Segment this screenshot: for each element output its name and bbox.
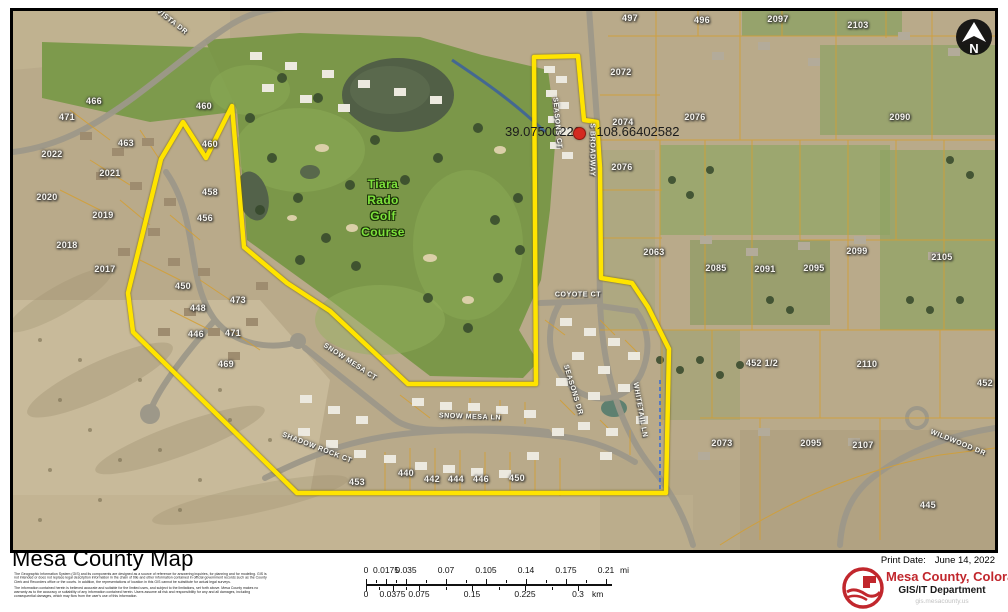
parcel-label: 2105: [931, 252, 952, 262]
parcel-label: 450: [509, 473, 525, 483]
scale-tick: [366, 586, 367, 591]
disclaimer-paragraph-2: The information contained herein is beli…: [14, 586, 267, 598]
parcel-label: 2063: [643, 247, 664, 257]
coordinate-latitude: 39.07500226: [505, 124, 581, 139]
parcel-label: 442: [424, 474, 440, 484]
parcel-label: 2110: [857, 359, 878, 369]
parcel-label: 496: [694, 15, 710, 25]
parcel-label: 2073: [711, 438, 732, 448]
parcel-label: 2076: [611, 162, 632, 172]
parcel-label: 2074: [612, 117, 633, 127]
street-label: COYOTE CT: [555, 292, 601, 299]
scale-tick: [406, 579, 407, 584]
street-label: S BROADWAY: [589, 123, 596, 177]
parcel-label: 2095: [800, 438, 821, 448]
street-label: SEASONS DR: [562, 364, 584, 416]
golf-label-line: Tiara: [361, 176, 405, 192]
scale-tick: [366, 579, 367, 584]
scale-tick-minor: [499, 587, 500, 590]
scale-bar: 00.01750.0350.070.1050.140.1750.21mi00.0…: [366, 565, 666, 603]
parcel-label: 440: [398, 468, 414, 478]
scale-tick-minor: [446, 587, 447, 590]
scale-label: 0.07: [438, 565, 455, 575]
parcel-label: 2107: [852, 440, 873, 450]
parcel-label: 469: [218, 359, 234, 369]
parcel-label: 2017: [94, 264, 115, 274]
scale-bar-line: [366, 584, 612, 586]
parcel-label: 471: [59, 112, 75, 122]
parcel-label: 448: [190, 303, 206, 313]
street-label: SEASONS CT: [551, 97, 562, 149]
scale-tick: [606, 579, 607, 584]
map-viewport: N Tiara Rado Golf Course 39.07500226 -10…: [10, 8, 998, 553]
parcel-label: 446: [188, 329, 204, 339]
print-date: Print Date:June 14, 2022: [881, 555, 995, 566]
parcel-label: 2021: [99, 168, 120, 178]
map-footer: Mesa County Map The Geographic Informati…: [0, 553, 1008, 612]
scale-tick-minor: [586, 580, 587, 583]
parcel-label: 2085: [705, 263, 726, 273]
street-label: VISTA DR: [155, 8, 188, 36]
parcel-label: 2099: [846, 246, 867, 256]
scale-tick: [386, 579, 387, 584]
scale-label: 0.035: [395, 565, 416, 575]
coordinate-longitude: -108.66402582: [592, 124, 679, 139]
scale-tick: [419, 586, 420, 591]
golf-label-line: Rado: [361, 192, 405, 208]
street-label: SNOW MESA CT: [322, 342, 378, 382]
scale-tick-minor: [552, 587, 553, 590]
mesa-county-logo: [838, 566, 888, 610]
scale-label: 0: [364, 565, 369, 575]
scale-unit: km: [592, 589, 603, 599]
parcel-label: 2076: [684, 112, 705, 122]
scale-label: 0.175: [555, 565, 576, 575]
scale-label: 0.105: [475, 565, 496, 575]
scale-tick-minor: [426, 580, 427, 583]
point-marker: [573, 127, 586, 140]
parcel-label: 446: [473, 474, 489, 484]
parcel-label: 450: [175, 281, 191, 291]
scale-tick-minor: [546, 580, 547, 583]
scale-tick: [566, 579, 567, 584]
scale-tick-minor: [396, 580, 397, 583]
scale-tick: [526, 579, 527, 584]
scale-tick: [578, 586, 579, 591]
golf-label-line: Course: [361, 224, 405, 240]
print-date-value: June 14, 2022: [935, 555, 995, 566]
scale-tick: [472, 586, 473, 591]
scale-tick-minor: [376, 580, 377, 583]
scale-label: 0.14: [518, 565, 535, 575]
parcel-label: 2020: [36, 192, 57, 202]
parcel-label: 466: [86, 96, 102, 106]
street-label: SNOW MESA LN: [439, 412, 501, 421]
parcel-label: 2097: [767, 14, 788, 24]
scale-tick: [486, 579, 487, 584]
print-date-label: Print Date:: [881, 555, 926, 566]
street-label: WHITETAIL LN: [632, 382, 649, 438]
parcel-label: 2095: [803, 263, 824, 273]
parcel-label: 452 1/2: [746, 358, 778, 368]
parcel-label: 456: [197, 213, 213, 223]
parcel-label: 2018: [56, 240, 77, 250]
parcel-label: 2091: [754, 264, 775, 274]
golf-course-label: Tiara Rado Golf Course: [361, 176, 405, 240]
dept-name: GIS/IT Department: [886, 585, 998, 596]
page-title: Mesa County Map: [12, 548, 194, 570]
disclaimer-paragraph-1: The Geographic Information System (GIS) …: [14, 572, 267, 584]
scale-tick: [446, 579, 447, 584]
map-labels: Tiara Rado Golf Course 39.07500226 -108.…: [13, 11, 995, 550]
parcel-label: 452: [977, 378, 993, 388]
parcel-label: 2019: [92, 210, 113, 220]
parcel-label: 453: [349, 477, 365, 487]
parcel-label: 458: [202, 187, 218, 197]
parcel-label: 2022: [41, 149, 62, 159]
disclaimer-text: The Geographic Information System (GIS) …: [14, 572, 267, 600]
parcel-label: 2072: [610, 67, 631, 77]
parcel-label: 473: [230, 295, 246, 305]
scale-tick: [525, 586, 526, 591]
scale-label: 0.21: [598, 565, 615, 575]
parcel-label: 463: [118, 138, 134, 148]
parcel-label: 471: [225, 328, 241, 338]
scale-tick-minor: [406, 587, 407, 590]
parcel-label: 460: [202, 139, 218, 149]
golf-label-line: Golf: [361, 208, 405, 224]
scale-unit: mi: [620, 565, 629, 575]
org-name: Mesa County, Colorado: [886, 569, 998, 584]
parcel-label: 2103: [847, 20, 868, 30]
parcel-label: 460: [196, 101, 212, 111]
parcel-label: 444: [448, 474, 464, 484]
parcel-label: 445: [920, 500, 936, 510]
street-label: SHADOW ROCK CT: [281, 431, 353, 464]
scale-tick-minor: [506, 580, 507, 583]
parcel-label: 497: [622, 13, 638, 23]
scale-tick: [393, 586, 394, 591]
street-label: WILDWOOD DR: [929, 429, 986, 458]
org-url: gis.mesacounty.us: [886, 598, 998, 605]
scale-tick-minor: [466, 580, 467, 583]
parcel-label: 2090: [889, 112, 910, 122]
